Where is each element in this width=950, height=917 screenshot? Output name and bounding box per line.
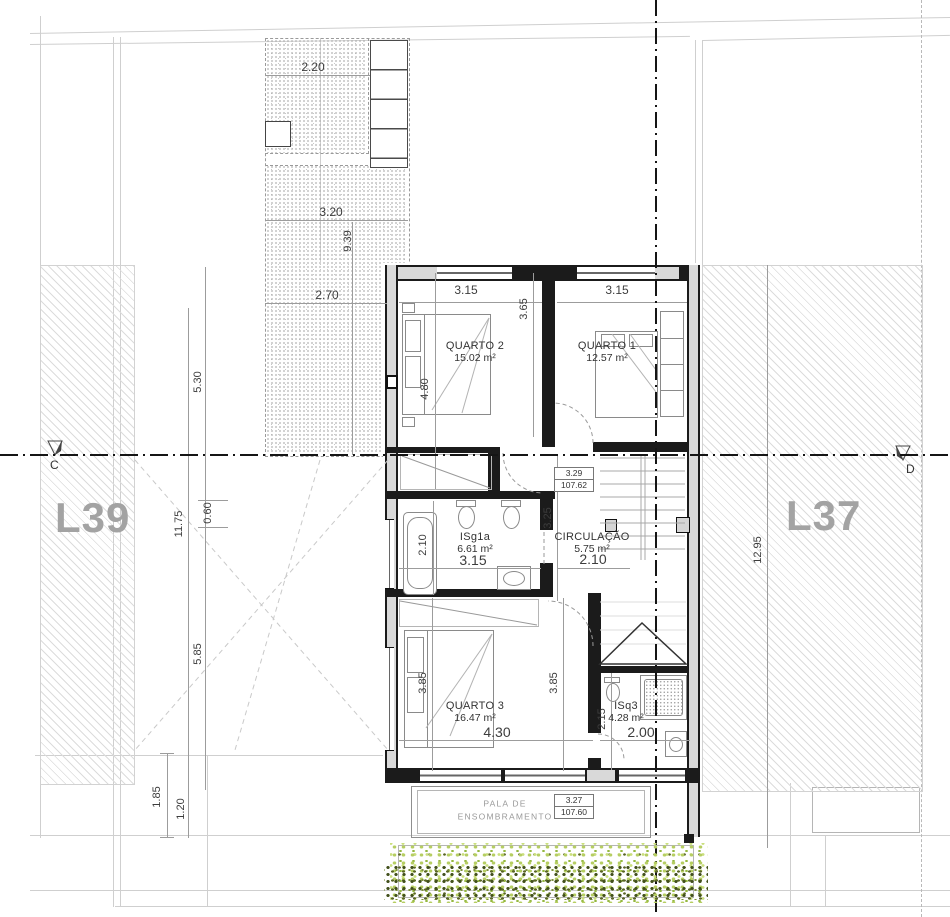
room-name: ISg1a (457, 531, 493, 543)
dimension-label: 0.60 (202, 502, 214, 523)
dimension-label: 1.85 (151, 786, 163, 807)
dimension-label: 4.80 (419, 378, 431, 399)
section-marker-d: D (906, 462, 915, 476)
dimension-label: 2.00 (627, 724, 654, 740)
room-label-isq3: ISq34.28 m² (608, 700, 644, 724)
dimension-label: 3.15 (605, 283, 628, 297)
room-name: ISq3 (608, 700, 644, 712)
dimension-label: 3.25 (542, 507, 554, 528)
room-area: 12.57 m² (578, 352, 636, 364)
room-area: 6.61 m² (457, 543, 493, 555)
room-label-quarto-1: QUARTO 112.57 m² (578, 340, 636, 364)
dimension-label: 12.95 (752, 536, 764, 564)
dimension-line (557, 568, 630, 569)
dimension-label: 5.30 (192, 371, 204, 392)
axis-line-vertical (655, 0, 657, 917)
room-name: QUARTO 3 (446, 700, 504, 712)
dimension-label: 3.85 (417, 672, 429, 693)
dimension-label: 3.85 (548, 672, 560, 693)
dimension-line (563, 598, 564, 771)
dimension-label: 11.75 (173, 511, 185, 538)
dimension-label: 2.10 (417, 534, 429, 555)
room-label-quarto-2: QUARTO 215.02 m² (446, 340, 504, 364)
dimension-label: 4.30 (483, 724, 510, 740)
dimension-label: 5.85 (192, 643, 204, 664)
dimension-line (399, 568, 541, 569)
vegetation-shadow (384, 864, 708, 900)
room-name: QUARTO 2 (446, 340, 504, 352)
room-name: CIRCULAÇÃO (554, 531, 629, 543)
floor-plan-canvas: L39 L37 (0, 0, 950, 917)
room-label-isg1a: ISg1a6.61 m² (457, 531, 493, 555)
dimension-line (160, 837, 174, 838)
plan-linework (0, 0, 950, 917)
dimension-label: 2.20 (301, 60, 324, 74)
dimension-label: 9.39 (342, 230, 354, 251)
room-label-quarto-3: QUARTO 316.47 m² (446, 700, 504, 724)
dimension-line (167, 753, 168, 838)
room-area: 15.02 m² (446, 352, 504, 364)
dimension-label: 2.70 (315, 288, 338, 302)
canopy-label-line1: PALA DE (458, 797, 553, 810)
canopy-label-line2: ENSOMBRAMENTO (458, 810, 553, 823)
level-marker-upper: 3.29 107.62 (554, 467, 594, 492)
dimension-line (600, 740, 690, 741)
dimension-label: 3.15 (454, 283, 477, 297)
section-marker-c: C (50, 458, 59, 472)
room-name: QUARTO 1 (578, 340, 636, 352)
room-label-circulacao: CIRCULAÇÃO5.75 m² (554, 531, 629, 555)
dimension-line (352, 222, 353, 455)
dimension-label: 3.65 (518, 298, 530, 319)
dimension-line (188, 308, 189, 838)
dimension-line (205, 267, 206, 790)
dimension-line (198, 527, 228, 528)
dimension-line (432, 598, 433, 771)
canopy-label: PALA DE ENSOMBRAMENTO (458, 797, 553, 823)
dimension-line (533, 273, 534, 437)
room-area: 4.28 m² (608, 712, 644, 724)
room-area: 5.75 m² (554, 543, 629, 555)
dimension-label: 1.20 (175, 798, 187, 819)
dimension-line (160, 753, 174, 754)
dimension-line (399, 740, 593, 741)
level-absolute: 107.62 (555, 480, 593, 491)
section-line-cd (0, 454, 950, 456)
dimension-label: 2.15 (596, 708, 608, 729)
dimension-label: 3.20 (319, 205, 342, 219)
dimension-line (435, 273, 436, 489)
dimension-line (557, 302, 687, 303)
dimension-line (767, 265, 768, 848)
level-relative: 3.29 (555, 468, 593, 480)
dimension-line (265, 220, 408, 221)
dimension-line (198, 500, 228, 501)
dimension-line (433, 501, 434, 595)
dimension-line (265, 303, 387, 304)
dimension-line (265, 75, 370, 76)
room-area: 16.47 m² (446, 712, 504, 724)
